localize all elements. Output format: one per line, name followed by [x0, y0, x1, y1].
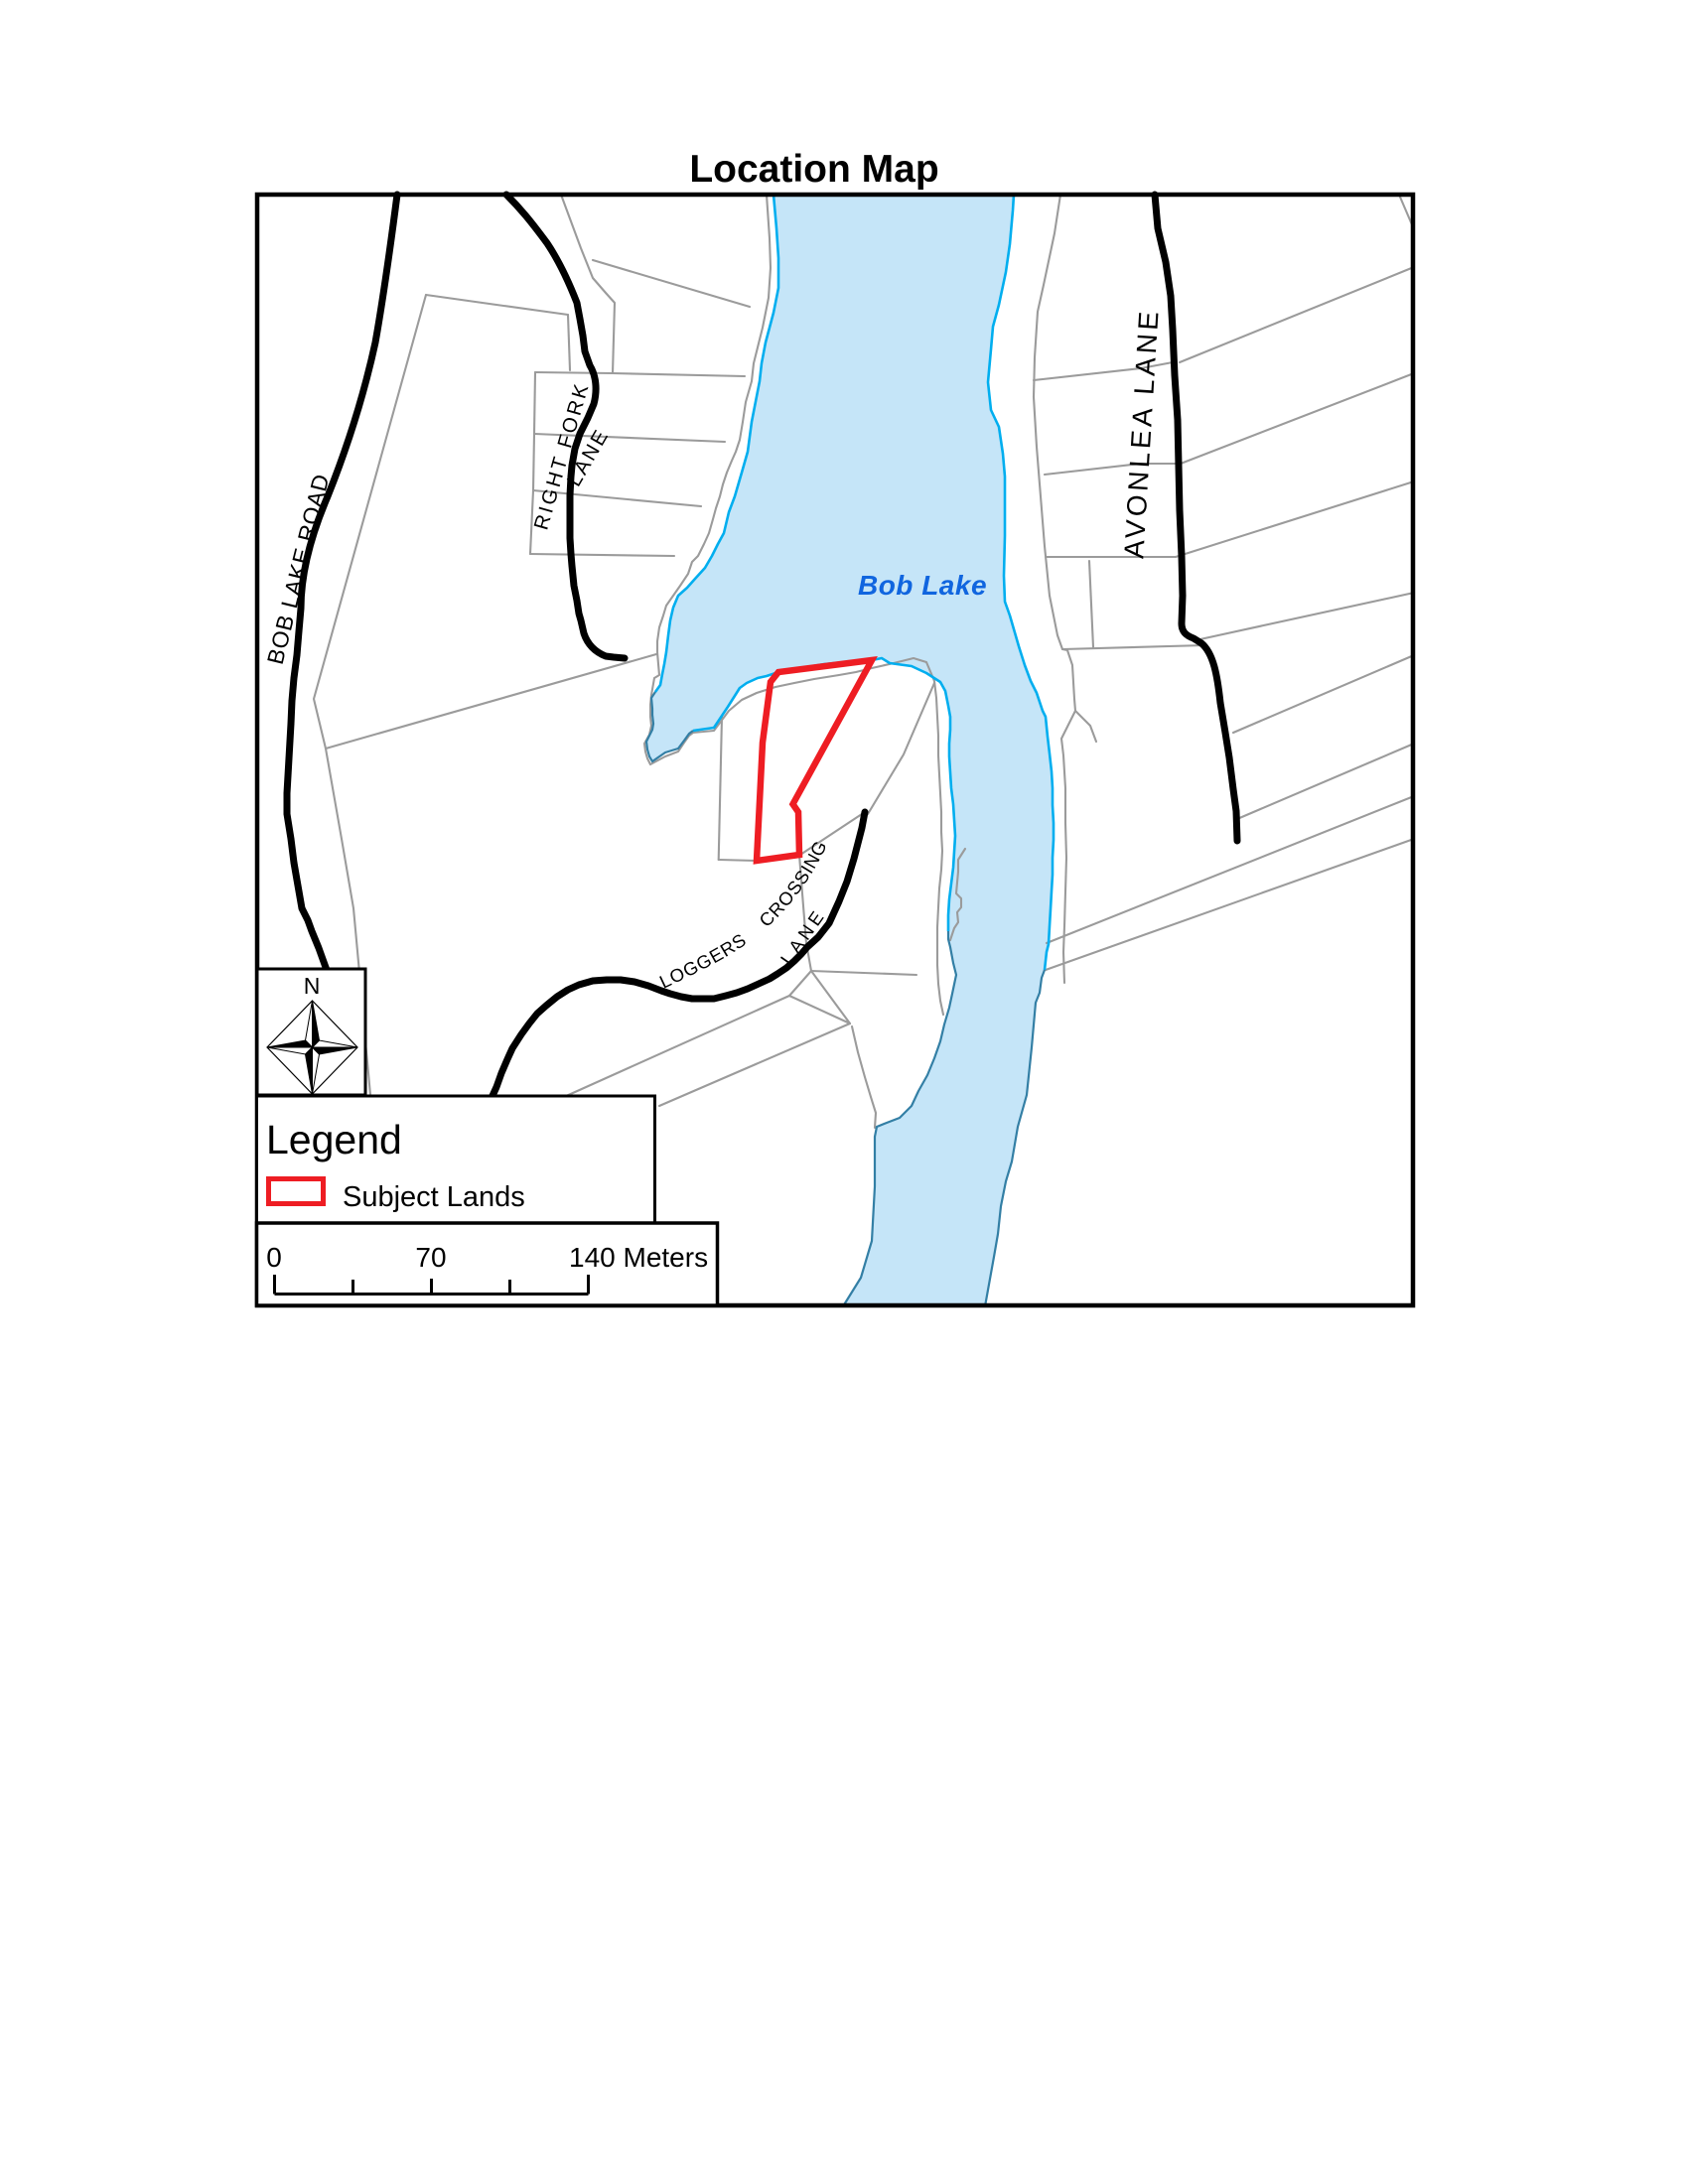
svg-text:140 Meters: 140 Meters [569, 1242, 708, 1273]
svg-text:Bob Lake: Bob Lake [858, 570, 987, 601]
svg-text:Subject Lands: Subject Lands [343, 1181, 525, 1213]
svg-text:70: 70 [415, 1242, 446, 1273]
svg-text:Legend: Legend [266, 1117, 402, 1162]
svg-text:N: N [304, 973, 321, 999]
svg-text:0: 0 [266, 1242, 282, 1273]
svg-text:Location Map: Location Map [689, 148, 938, 191]
